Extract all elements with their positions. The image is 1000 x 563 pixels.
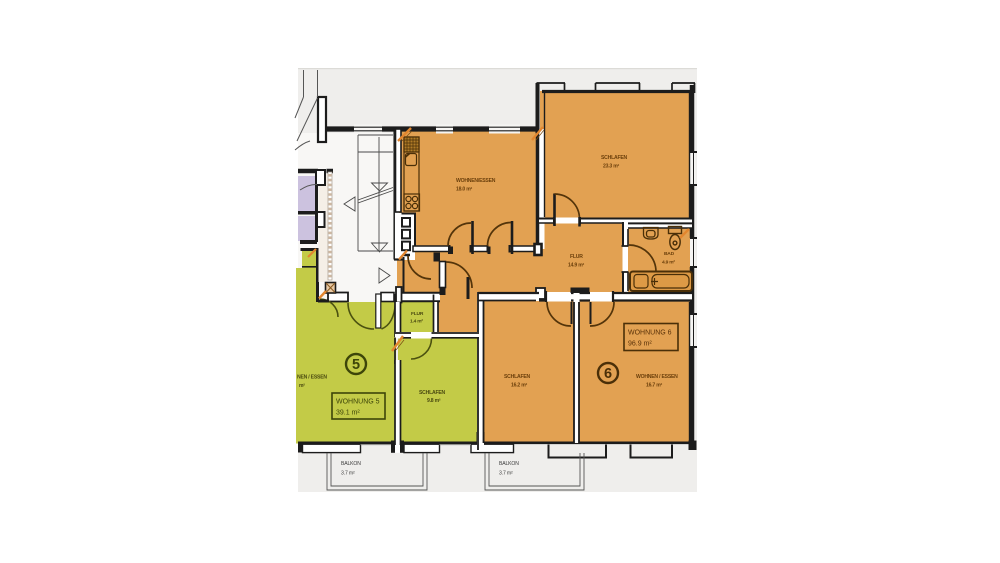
svg-text:16.7 m²: 16.7 m² [646, 383, 663, 389]
svg-text:FLUR: FLUR [411, 311, 424, 317]
svg-text:39.1 m²: 39.1 m² [336, 410, 360, 417]
svg-text:WOHNUNG 5: WOHNUNG 5 [336, 399, 380, 406]
svg-text:5: 5 [352, 357, 360, 373]
svg-text:BALKON: BALKON [499, 461, 519, 467]
svg-text:WOHNUNG 6: WOHNUNG 6 [628, 330, 672, 337]
svg-text:6: 6 [604, 366, 612, 382]
svg-text:96.9 m²: 96.9 m² [628, 341, 652, 348]
svg-text:BAD: BAD [664, 251, 675, 257]
svg-text:3.7 m²: 3.7 m² [499, 471, 513, 477]
svg-text:SCHLAFEN: SCHLAFEN [504, 374, 531, 380]
svg-text:4.9 m²: 4.9 m² [662, 260, 675, 266]
svg-text:23.3 m²: 23.3 m² [603, 164, 620, 170]
svg-text:9.8 m²: 9.8 m² [427, 398, 441, 404]
svg-text:SCHLAFEN: SCHLAFEN [419, 390, 446, 396]
svg-text:1.4 m²: 1.4 m² [410, 319, 423, 325]
svg-text:14.9 m²: 14.9 m² [568, 263, 585, 269]
svg-text:WOHNEN/ESSEN: WOHNEN/ESSEN [456, 178, 496, 184]
svg-text:WOHNEN / ESSEN: WOHNEN / ESSEN [636, 374, 678, 380]
svg-text:SCHLAFEN: SCHLAFEN [601, 155, 628, 161]
svg-text:18.0 m²: 18.0 m² [456, 187, 473, 193]
svg-text:m²: m² [299, 383, 305, 389]
svg-text:FLUR: FLUR [570, 254, 583, 260]
svg-text:BALKON: BALKON [341, 461, 361, 467]
svg-text:NEN / ESSEN: NEN / ESSEN [297, 375, 327, 381]
svg-text:3.7 m²: 3.7 m² [341, 471, 355, 477]
svg-text:16.2 m²: 16.2 m² [511, 383, 528, 389]
